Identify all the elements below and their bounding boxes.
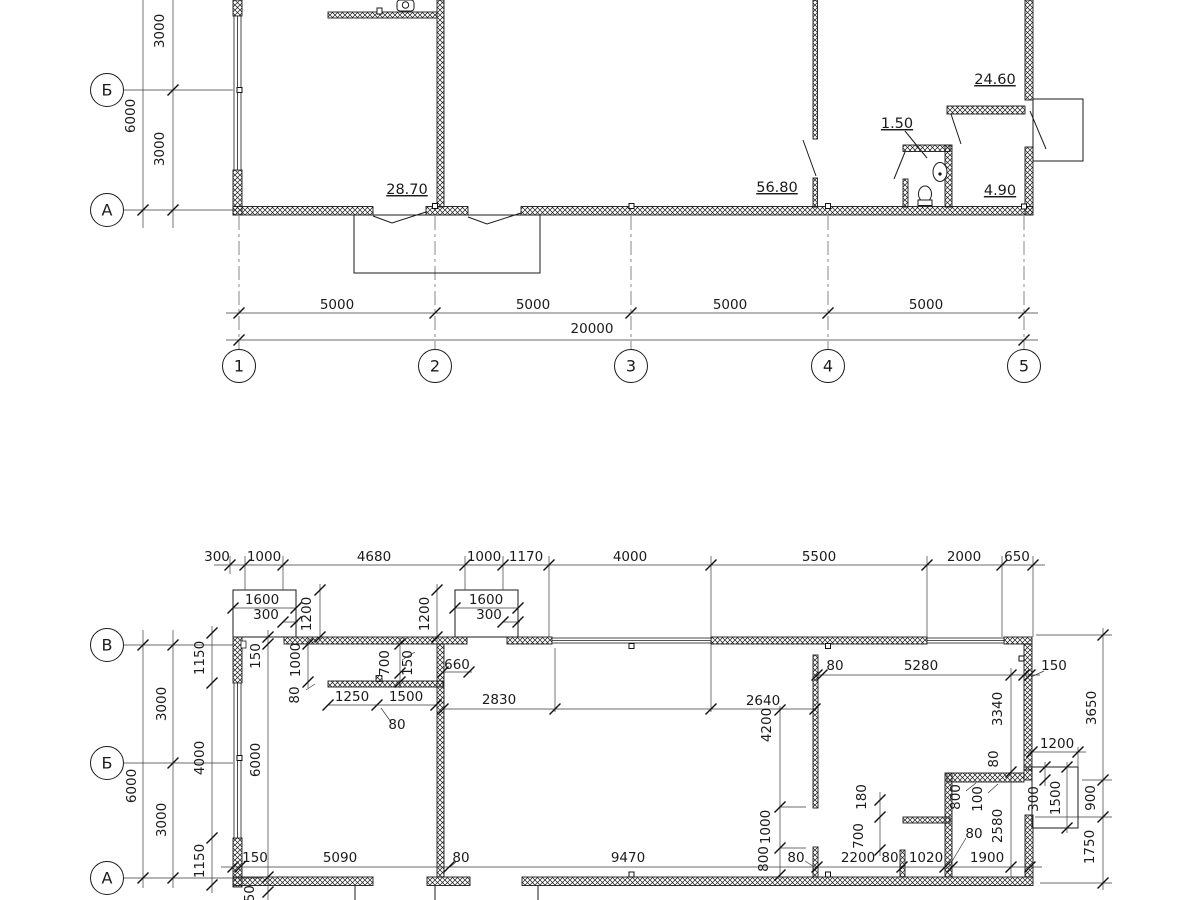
dim-label: 1200 [417, 597, 433, 631]
porches [354, 99, 1083, 273]
dim-label: 150 [242, 885, 258, 900]
dim-label: 2640 [746, 693, 780, 709]
dim-label: 300 [204, 549, 230, 565]
dim-label: 5280 [904, 658, 938, 674]
axis-label: В [102, 636, 113, 655]
axis-bubbles: В Б А [91, 629, 124, 895]
dim-label: 4680 [357, 549, 391, 565]
dim-label: 1250 [335, 689, 369, 705]
axis-label: 4 [823, 357, 833, 376]
dim-label: 5500 [802, 549, 836, 565]
grid-lines [239, 216, 1024, 349]
dim-label: 80 [452, 850, 469, 866]
dim-label: 1200 [1040, 736, 1074, 752]
dim-label: 3000 [152, 132, 168, 166]
dim-label: 1750 [1082, 830, 1098, 864]
dim-label: 2830 [482, 692, 516, 708]
bottom-floor-plan: 300 1000 4680 1000 1170 4000 5500 2000 6… [91, 549, 1113, 900]
dim-label: 1000 [247, 549, 281, 565]
top-floor-plan: 3000 6000 3000 5000 5000 5000 5000 20000… [91, 0, 1084, 383]
dim-label: 5000 [713, 297, 747, 313]
axis-label: 1 [234, 357, 244, 376]
plumbing-fixtures [377, 0, 947, 206]
axis-label: 5 [1019, 357, 1029, 376]
dim-label: 4000 [613, 549, 647, 565]
floor-plan-drawing: 3000 6000 3000 5000 5000 5000 5000 20000… [0, 0, 1200, 900]
dim-label: 3340 [990, 692, 1006, 726]
dim-label: 5090 [323, 850, 357, 866]
dim-label: 800 [948, 784, 964, 810]
dim-label: 1000 [758, 810, 774, 844]
dim-label: 1150 [192, 844, 208, 878]
room-area-label: 4.90 [984, 183, 1016, 199]
dim-label: 5000 [516, 297, 550, 313]
dim-label: 80 [986, 750, 1002, 767]
grid-markers [237, 644, 1024, 878]
dim-label: 2000 [947, 549, 981, 565]
dim-label: 80 [388, 717, 405, 733]
dim-label: 3000 [154, 687, 170, 721]
dimension-ticks [138, 560, 1109, 898]
dim-label: 6000 [123, 99, 139, 133]
dim-label: 80 [965, 826, 982, 842]
dim-label: 5000 [909, 297, 943, 313]
dim-label: 300 [1026, 786, 1042, 812]
dim-label: 150 [400, 650, 416, 676]
dim-label: 900 [1083, 785, 1099, 811]
dim-label: 1500 [1048, 781, 1064, 815]
dim-label: 800 [756, 846, 772, 872]
room-area-label: 1.50 [881, 116, 913, 132]
dimension-lines [124, 0, 1039, 340]
dim-label: 180 [854, 784, 870, 810]
dim-label: 300 [253, 607, 279, 623]
dim-label: 80 [881, 850, 898, 866]
room-area-label: 28.70 [386, 182, 428, 198]
dim-label: 80 [287, 686, 303, 703]
dim-label: 2200 [841, 850, 875, 866]
dim-label: 3000 [154, 803, 170, 837]
walls [233, 0, 1033, 215]
axis-label: 2 [430, 357, 440, 376]
dim-label: 6000 [124, 769, 140, 803]
dim-label: 2580 [990, 809, 1006, 843]
dim-label: 700 [851, 823, 867, 849]
dim-label: 660 [444, 657, 470, 673]
axis-label: Б [102, 754, 113, 773]
sink-icon [933, 163, 947, 182]
dim-label: 80 [787, 850, 804, 866]
dim-label: 1600 [469, 592, 503, 608]
dim-label: 20000 [571, 321, 614, 337]
dim-label: 1000 [467, 549, 501, 565]
dim-label: 1000 [288, 643, 304, 677]
dim-label: 6000 [248, 743, 264, 777]
dim-label: 300 [476, 607, 502, 623]
dim-label: 1500 [389, 689, 423, 705]
dim-label: 4000 [192, 741, 208, 775]
dim-label: 1170 [509, 549, 543, 565]
dim-label: 1900 [970, 850, 1004, 866]
dim-label: 150 [242, 850, 268, 866]
labels: 300 1000 4680 1000 1170 4000 5500 2000 6… [124, 549, 1100, 900]
dim-label: 650 [1004, 549, 1030, 565]
dim-label: 80 [826, 658, 843, 674]
dim-label: 150 [1041, 658, 1067, 674]
axis-label: А [102, 201, 113, 220]
dim-label: 100 [970, 786, 986, 812]
dim-label: 3650 [1084, 691, 1100, 725]
dim-label: 1150 [192, 641, 208, 675]
room-area-label: 24.60 [974, 72, 1016, 88]
axis-label: 3 [626, 357, 636, 376]
dim-label: 700 [377, 650, 393, 676]
room-area-label: 56.80 [756, 180, 798, 196]
dim-label: 150 [248, 643, 264, 669]
dim-label: 1600 [245, 592, 279, 608]
floor-plan-sheet: 3000 6000 3000 5000 5000 5000 5000 20000… [0, 0, 1200, 900]
axis-label: А [102, 869, 113, 888]
dim-label: 3000 [152, 14, 168, 48]
dim-label: 4200 [759, 708, 775, 742]
dim-label: 5000 [320, 297, 354, 313]
dim-label: 1020 [909, 850, 943, 866]
dim-label: 1200 [299, 597, 315, 631]
windows [234, 638, 1004, 838]
dim-label: 9470 [611, 850, 645, 866]
labels: 3000 6000 3000 5000 5000 5000 5000 20000… [123, 14, 1016, 337]
axis-label: Б [102, 81, 113, 100]
